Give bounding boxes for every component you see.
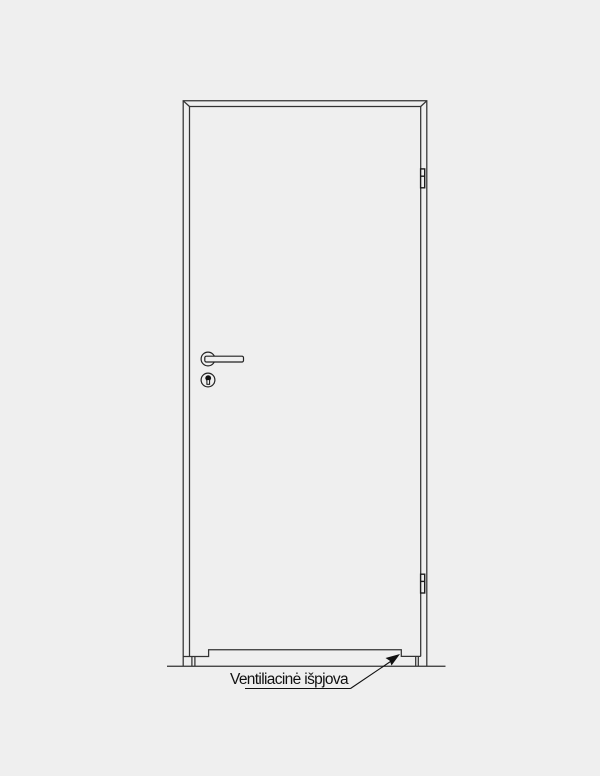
svg-text:Ventiliacinė išpjova: Ventiliacinė išpjova (230, 671, 349, 688)
